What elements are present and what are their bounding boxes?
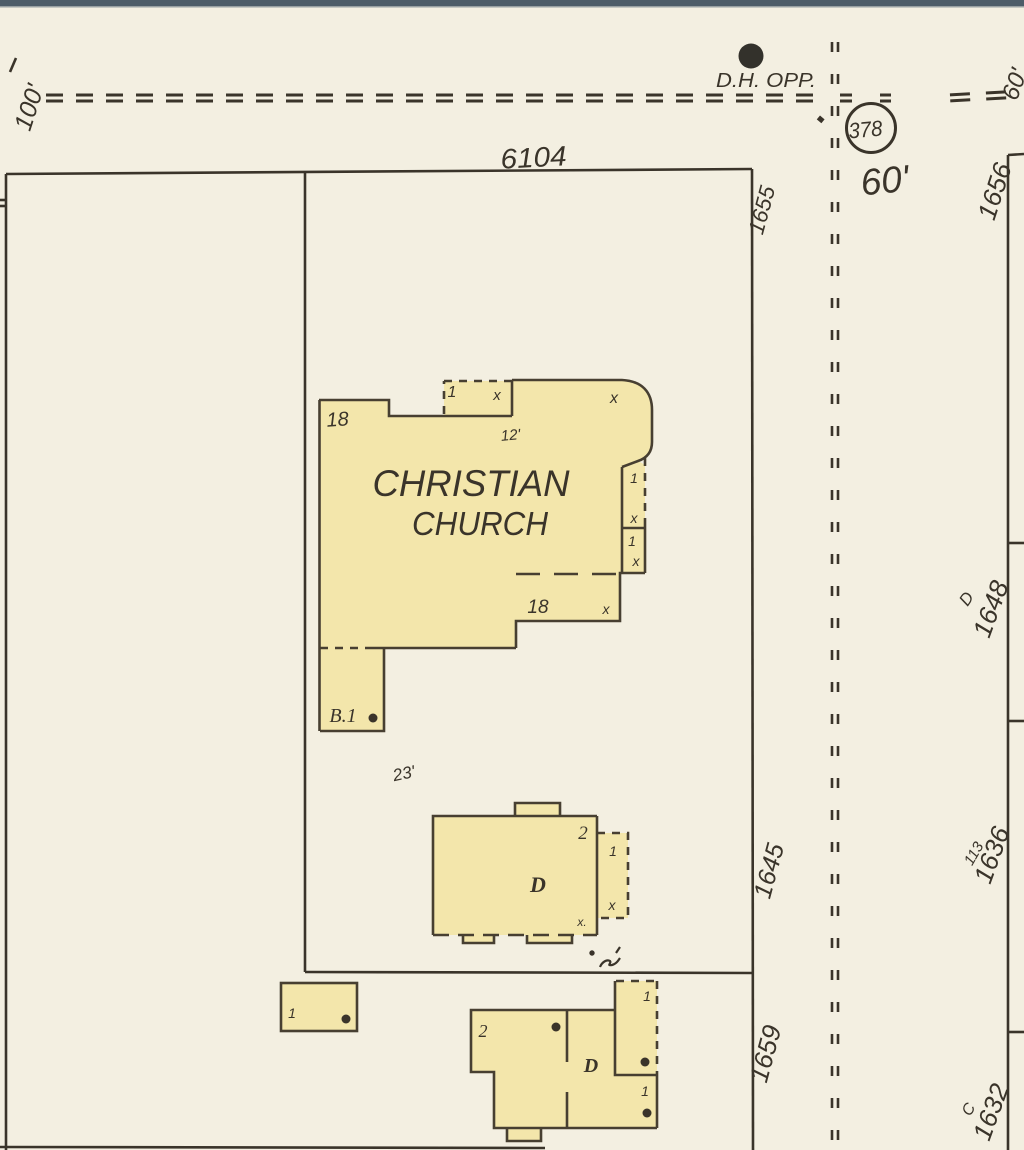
svg-text:x: x xyxy=(608,897,617,913)
svg-text:x: x xyxy=(492,387,501,404)
svg-text:x.: x. xyxy=(576,915,586,929)
svg-text:x: x xyxy=(630,510,639,526)
svg-text:1: 1 xyxy=(448,384,457,401)
svg-text:x: x xyxy=(632,553,641,569)
svg-text:1: 1 xyxy=(630,470,638,486)
svg-text:D: D xyxy=(583,1055,598,1077)
svg-text:1: 1 xyxy=(288,1005,296,1021)
svg-text:D: D xyxy=(529,872,546,897)
svg-text:CHURCH: CHURCH xyxy=(412,505,548,542)
svg-text:1: 1 xyxy=(609,843,617,859)
svg-text:1: 1 xyxy=(643,988,651,1004)
svg-text:2: 2 xyxy=(578,823,588,844)
svg-text:1: 1 xyxy=(628,533,636,549)
svg-text:12': 12' xyxy=(500,426,522,445)
svg-text:18: 18 xyxy=(326,408,350,431)
svg-text:378: 378 xyxy=(847,116,884,144)
svg-text:6104: 6104 xyxy=(500,140,568,174)
svg-text:60': 60' xyxy=(859,157,913,203)
svg-text:2: 2 xyxy=(479,1021,488,1041)
svg-text:x: x xyxy=(602,601,611,617)
svg-text:D.H. OPP.: D.H. OPP. xyxy=(716,70,816,92)
svg-text:B.1: B.1 xyxy=(329,705,356,727)
svg-text:18: 18 xyxy=(527,597,549,618)
svg-text:x: x xyxy=(609,390,619,407)
svg-text:CHRISTIAN: CHRISTIAN xyxy=(373,463,570,504)
svg-text:1: 1 xyxy=(641,1083,649,1099)
